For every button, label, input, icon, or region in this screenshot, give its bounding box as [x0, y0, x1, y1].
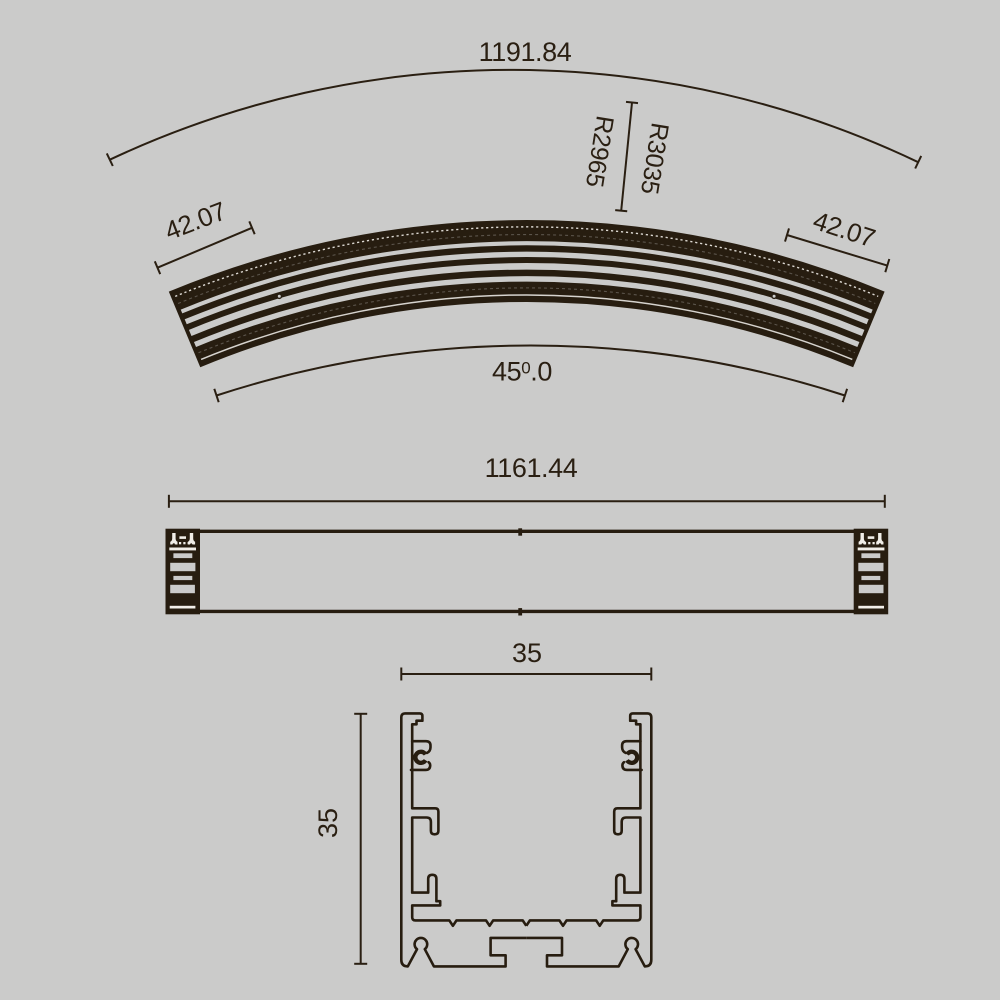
- svg-text:35: 35: [313, 808, 343, 838]
- svg-text:1191.84: 1191.84: [479, 37, 572, 67]
- svg-text:35: 35: [512, 638, 542, 668]
- svg-text:1161.44: 1161.44: [485, 453, 578, 483]
